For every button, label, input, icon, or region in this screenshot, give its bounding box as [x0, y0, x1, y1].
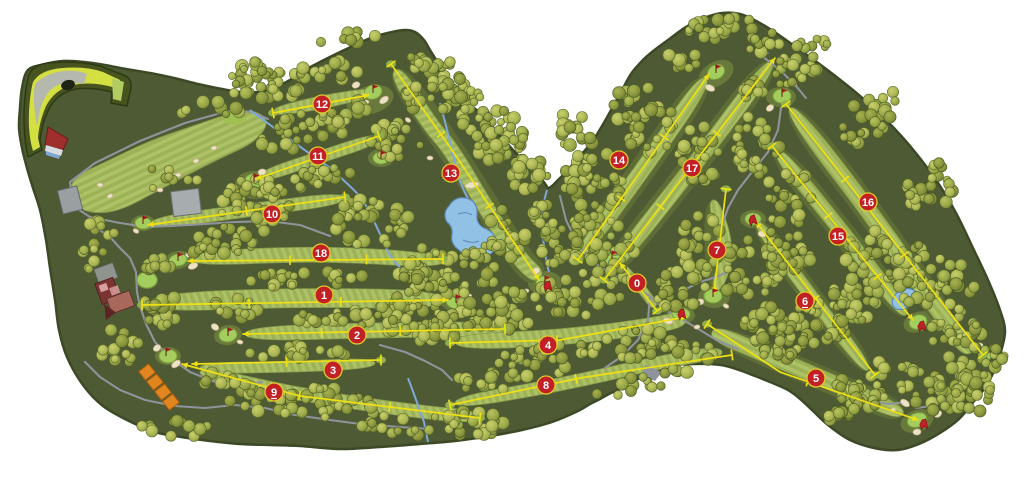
svg-text:3: 3 [330, 365, 336, 377]
svg-text:13: 13 [445, 168, 457, 180]
svg-text:1: 1 [321, 290, 327, 302]
svg-text:15: 15 [832, 231, 844, 243]
svg-text:14: 14 [613, 155, 626, 167]
svg-text:7: 7 [714, 245, 720, 257]
svg-text:6: 6 [802, 296, 808, 308]
svg-text:9: 9 [271, 387, 277, 399]
svg-text:5: 5 [813, 373, 819, 385]
svg-text:18: 18 [315, 248, 327, 260]
svg-text:16: 16 [862, 197, 874, 209]
svg-text:10: 10 [266, 209, 278, 221]
svg-text:0: 0 [634, 278, 640, 290]
svg-text:12: 12 [316, 99, 328, 111]
svg-text:8: 8 [543, 380, 549, 392]
svg-text:2: 2 [354, 330, 360, 342]
svg-text:17: 17 [686, 163, 698, 175]
svg-text:4: 4 [545, 340, 552, 352]
svg-text:11: 11 [312, 151, 324, 163]
